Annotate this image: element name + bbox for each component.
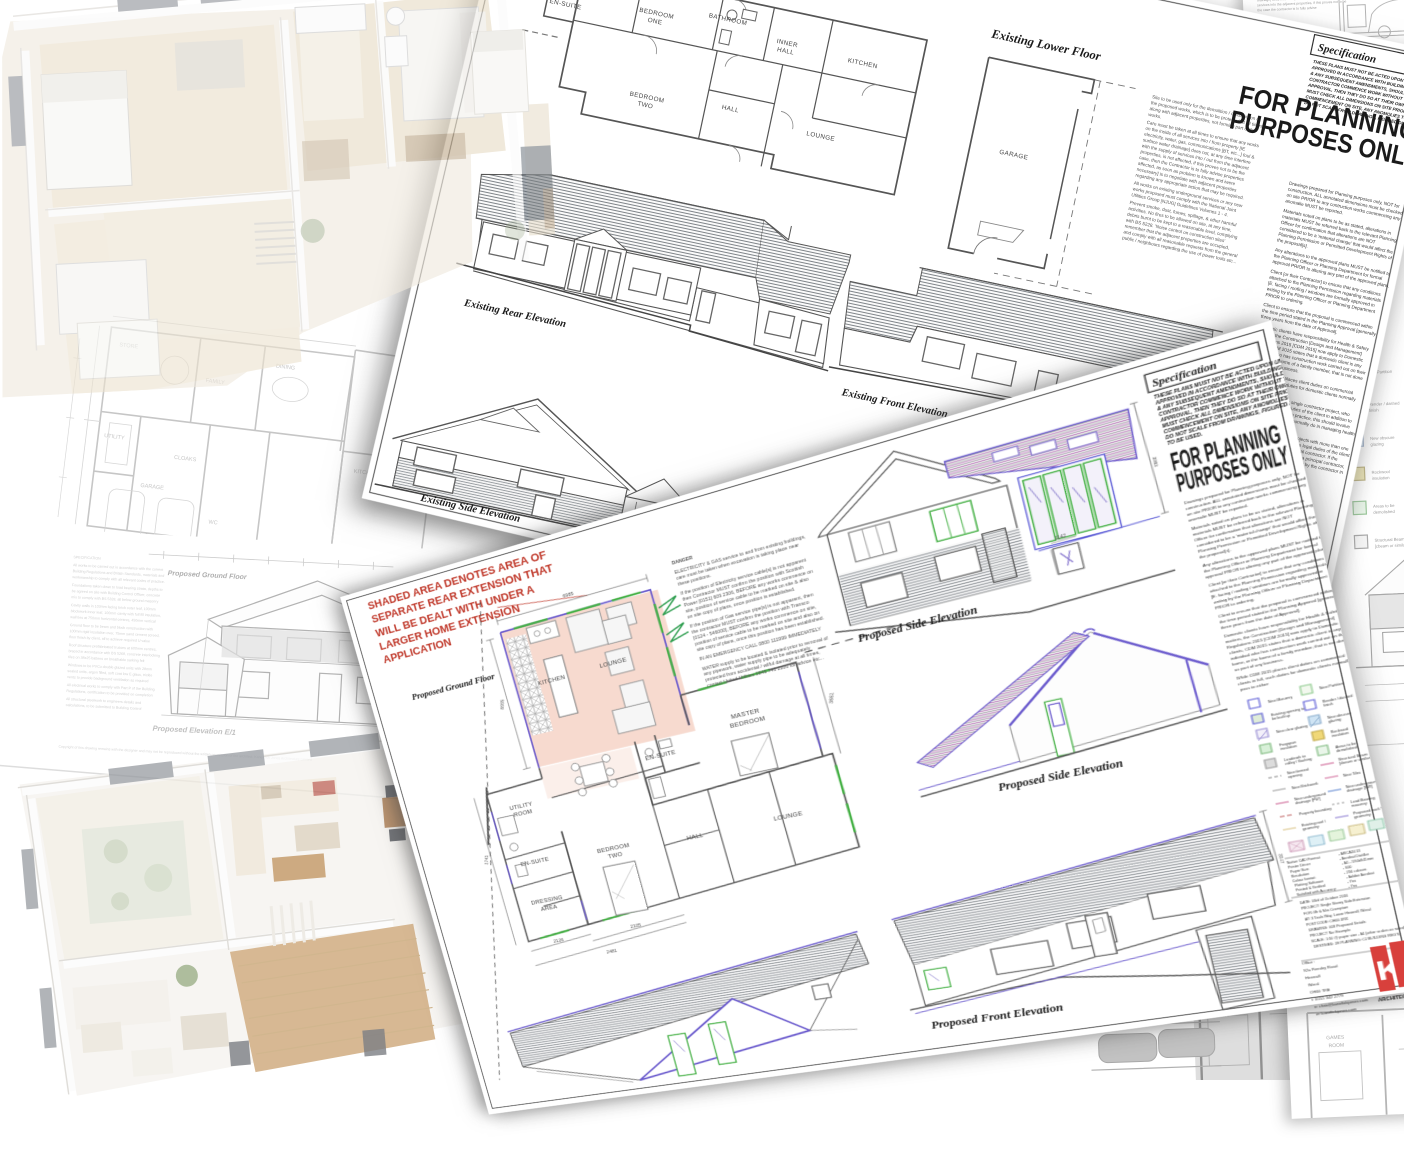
svg-text:ARCHITECTURE: ARCHITECTURE	[1378, 992, 1404, 1002]
svg-text:2126: 2126	[553, 937, 565, 944]
svg-text:UTILITY: UTILITY	[104, 433, 125, 441]
svg-text:2481: 2481	[606, 948, 618, 955]
svg-text:New Partition: New Partition	[1319, 681, 1345, 691]
svg-text:New obscure: New obscure	[1370, 435, 1395, 441]
svg-text:CLOAKS: CLOAKS	[174, 455, 197, 464]
svg-text:HALL: HALL	[686, 833, 704, 842]
svg-text:Proposed Front Elevation: Proposed Front Elevation	[930, 1002, 1065, 1032]
svg-text:AREA: AREA	[540, 904, 558, 913]
svg-text:Areas to be: Areas to be	[1373, 503, 1395, 509]
svg-text:SPECIFICATION: SPECIFICATION	[73, 555, 101, 560]
svg-text:TWO: TWO	[607, 852, 624, 861]
svg-text:New clear glazing: New clear glazing	[1276, 723, 1309, 734]
svg-text:Heswall: Heswall	[1305, 974, 1321, 981]
svg-text:WC: WC	[208, 519, 218, 526]
svg-text:GARAGE: GARAGE	[999, 149, 1029, 162]
svg-text:LOUNGE: LOUNGE	[773, 811, 804, 823]
svg-text:Existing Lower Floor: Existing Lower Floor	[989, 26, 1102, 63]
svg-text:Wirral: Wirral	[1308, 981, 1321, 987]
svg-text:CH60 7RE: CH60 7RE	[1309, 988, 1330, 995]
svg-text:92a Pensby Road: 92a Pensby Road	[1303, 964, 1339, 973]
svg-text:Rockwool: Rockwool	[1371, 469, 1389, 475]
svg-text:3661: 3661	[828, 692, 835, 704]
svg-text:LOUNGE: LOUNGE	[806, 130, 836, 143]
svg-text:finish: finish	[1369, 407, 1380, 412]
svg-text:3047: 3047	[1277, 853, 1285, 864]
svg-text:Render / dashed: Render / dashed	[1369, 401, 1401, 407]
svg-text:HALL: HALL	[721, 104, 740, 114]
svg-text:DANGER: DANGER	[671, 555, 693, 566]
svg-text:Proposed Side Elevation: Proposed Side Elevation	[997, 759, 1124, 795]
svg-text:Property boundary: Property boundary	[1299, 806, 1334, 817]
svg-text:2105: 2105	[630, 922, 642, 929]
svg-text:New Brickwork: New Brickwork	[1291, 781, 1319, 791]
svg-text:insulation: insulation	[1372, 475, 1391, 481]
svg-text:1741: 1741	[484, 854, 489, 865]
svg-text:New Masonry: New Masonry	[1268, 694, 1294, 704]
svg-text:Existing Front Elevation: Existing Front Elevation	[840, 387, 949, 420]
svg-text:KITCHEN: KITCHEN	[847, 57, 878, 70]
svg-text:3993: 3993	[1151, 456, 1159, 467]
svg-text:8005: 8005	[500, 699, 505, 710]
svg-text:ROOM: ROOM	[513, 809, 533, 819]
svg-text:[cbeam or similar]: [cbeam or similar]	[1375, 542, 1404, 548]
svg-text:EN-SUITE: EN-SUITE	[520, 857, 550, 869]
svg-text:glazing: glazing	[1370, 441, 1384, 447]
svg-text:Proposed Ground Floor: Proposed Ground Floor	[168, 570, 248, 581]
svg-text:New Tiles: New Tiles	[1343, 770, 1363, 778]
svg-text:Office :: Office :	[1301, 959, 1316, 966]
svg-text:GARAGE: GARAGE	[140, 483, 164, 492]
svg-text:demolished: demolished	[1373, 509, 1395, 515]
